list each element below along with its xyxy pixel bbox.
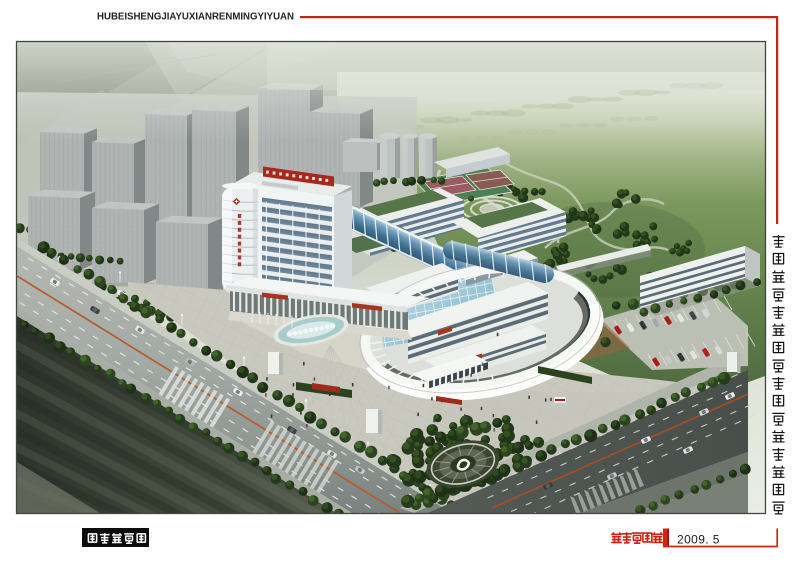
svg-text:2009. 5: 2009. 5 <box>677 533 720 547</box>
svg-text:HUBEISHENGJIAYUXIANRENMINGYIYU: HUBEISHENGJIAYUXIANRENMINGYIYUAN <box>97 12 294 23</box>
